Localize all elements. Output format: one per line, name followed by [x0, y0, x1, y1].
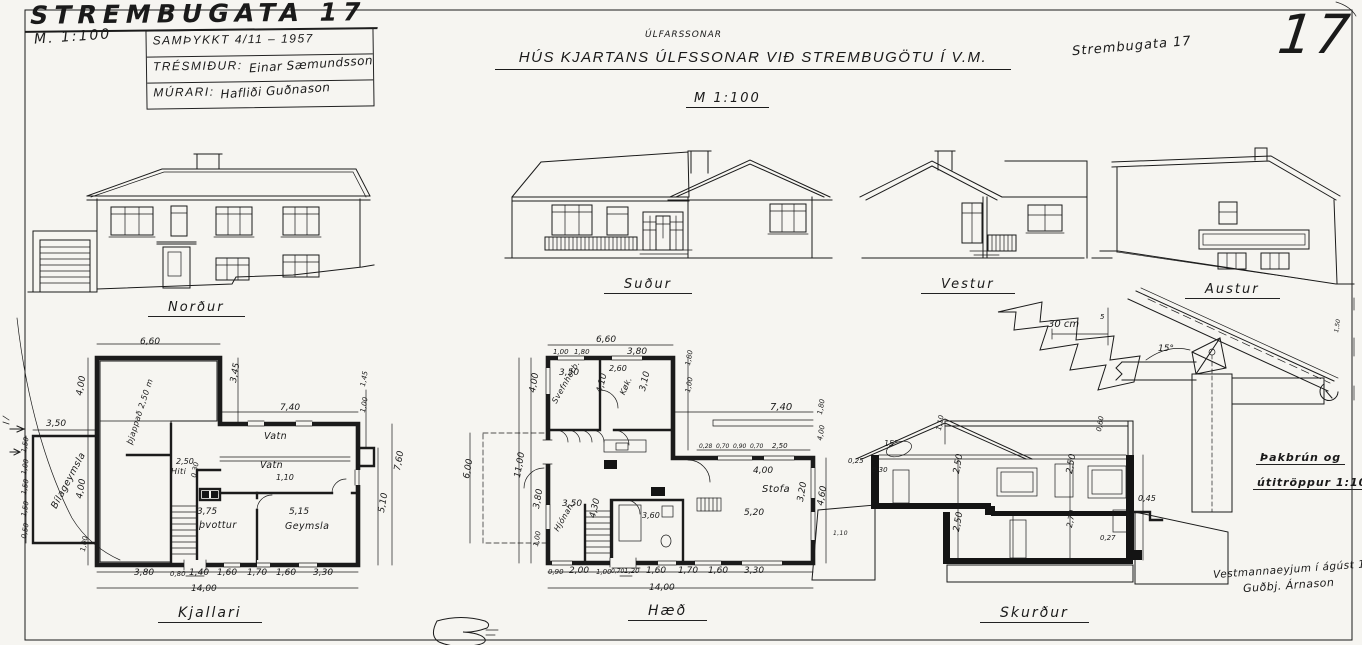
ink-smudge [433, 618, 498, 645]
section-drawing [812, 419, 1228, 584]
elevation-west-drawing [860, 151, 1112, 258]
elevation-east-drawing [1100, 148, 1354, 284]
sheet-frame [3, 2, 1356, 640]
drawing-linework: path,rect,ellipse,circle{stroke:#1b1b1b;… [0, 0, 1362, 645]
elevation-south-drawing [505, 151, 832, 258]
detail-drawing [998, 288, 1338, 512]
blueprint-sheet: { "sheet": { "title": "STREMBUGATA 17", … [0, 0, 1362, 645]
plan-main-floor-drawing [470, 345, 826, 588]
elevation-north-drawing [28, 154, 374, 292]
plan-basement-drawing [26, 344, 392, 588]
